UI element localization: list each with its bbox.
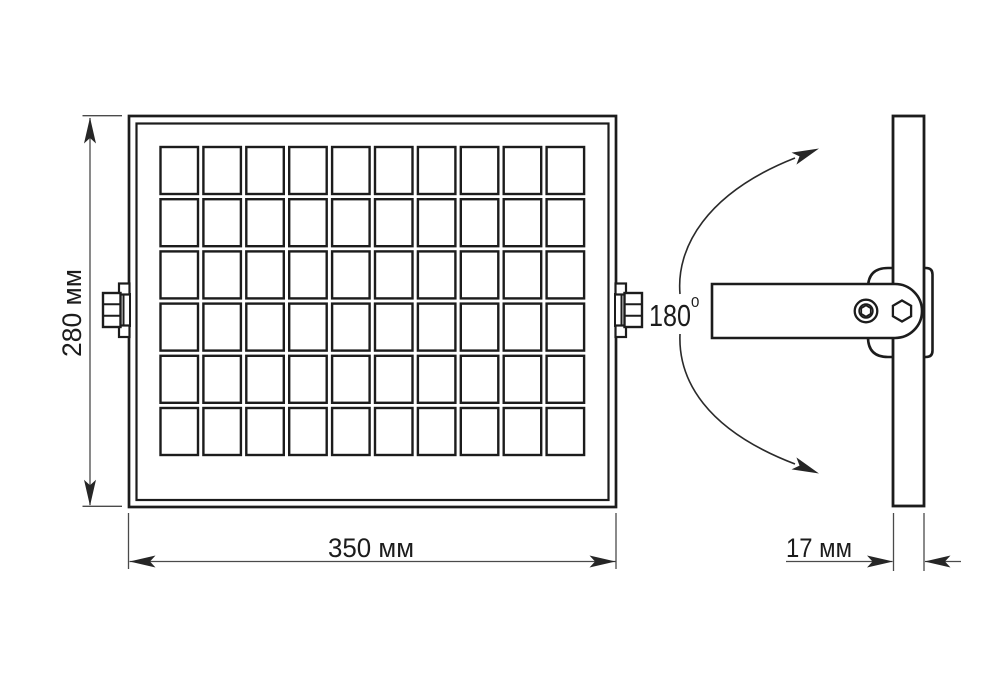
solar-cell (246, 199, 283, 246)
left-mount-bracket (103, 284, 130, 338)
solar-cell (547, 408, 585, 455)
solar-cell (418, 304, 456, 351)
solar-cell (246, 304, 283, 351)
solar-cell (547, 251, 585, 298)
rotation-angle-superscript: 0 (691, 294, 699, 311)
solar-cell (461, 199, 499, 246)
solar-cell (547, 199, 585, 246)
rotation-arc-down (680, 334, 795, 464)
solar-cell (418, 199, 456, 246)
solar-cell (332, 251, 370, 298)
rotation-angle-label: 180 (649, 298, 691, 333)
solar-cell (547, 304, 585, 351)
solar-cell (504, 304, 542, 351)
solar-cell (161, 356, 199, 403)
right-bracket-step (615, 294, 622, 326)
left-bracket-step (124, 294, 131, 326)
solar-cell (332, 147, 370, 194)
solar-cell (161, 147, 199, 194)
solar-cell (332, 199, 370, 246)
rotation-arrow-up-icon (792, 142, 822, 164)
thickness-label: 17 мм (786, 533, 852, 563)
right-mount-bracket (615, 284, 642, 338)
solar-cell (246, 147, 283, 194)
solar-cell (289, 408, 327, 455)
dimension-drawing: 280 мм 350 мм 180 0 (0, 0, 1000, 686)
solar-cell (246, 408, 283, 455)
solar-cell (203, 251, 241, 298)
hex-nut-icon (893, 301, 911, 322)
solar-cell (375, 304, 413, 351)
width-label: 350 мм (328, 533, 414, 563)
solar-cell (203, 304, 241, 351)
solar-cell (161, 304, 199, 351)
solar-cell (418, 408, 456, 455)
height-label: 280 мм (57, 269, 87, 357)
solar-cell (375, 199, 413, 246)
solar-cell (375, 251, 413, 298)
solar-cell (203, 356, 241, 403)
solar-cell (375, 356, 413, 403)
solar-cell (289, 147, 327, 194)
drawing-canvas: 280 мм 350 мм 180 0 (0, 0, 1000, 686)
solar-cell (504, 356, 542, 403)
rotation-arc-up (680, 158, 795, 294)
solar-cell (332, 304, 370, 351)
solar-cell (418, 251, 456, 298)
solar-cell (461, 408, 499, 455)
solar-cell (547, 356, 585, 403)
solar-cell (161, 251, 199, 298)
solar-cell (418, 356, 456, 403)
solar-cell (461, 147, 499, 194)
solar-cell (461, 356, 499, 403)
solar-cell (375, 147, 413, 194)
solar-cell (504, 408, 542, 455)
solar-cell (203, 147, 241, 194)
solar-cell (504, 147, 542, 194)
solar-cell (203, 408, 241, 455)
solar-cell (289, 356, 327, 403)
solar-cell (547, 147, 585, 194)
solar-cell (161, 199, 199, 246)
solar-cell (246, 356, 283, 403)
solar-cell (461, 304, 499, 351)
solar-cell (332, 356, 370, 403)
solar-cell (161, 408, 199, 455)
right-mount-knob (625, 293, 643, 327)
solar-cell (332, 408, 370, 455)
solar-cell (418, 147, 456, 194)
side-view (712, 116, 933, 506)
solar-cell (504, 199, 542, 246)
left-mount-knob (103, 293, 121, 327)
solar-cell (289, 304, 327, 351)
socket-screw (855, 300, 878, 323)
solar-cell (375, 408, 413, 455)
solar-cell (289, 199, 327, 246)
solar-cell (461, 251, 499, 298)
width-dimension: 350 мм (129, 513, 617, 569)
solar-cell (504, 251, 542, 298)
mount-arm (712, 284, 922, 338)
solar-cell (246, 251, 283, 298)
rotation-arrow-down-icon (792, 457, 822, 479)
solar-cell (203, 199, 241, 246)
solar-cell (289, 251, 327, 298)
thickness-dimension: 17 мм (786, 513, 961, 571)
front-view (103, 116, 642, 507)
